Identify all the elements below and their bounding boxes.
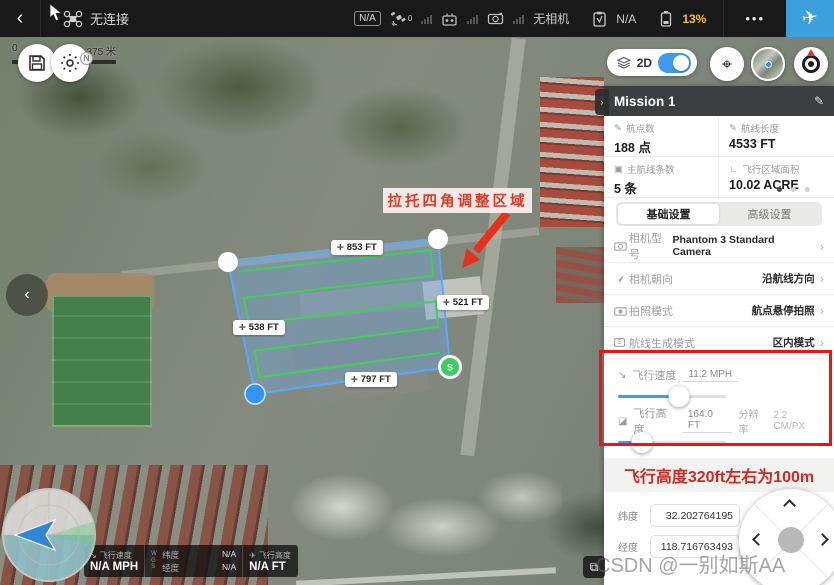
telemetry-alt-label: 飞行高度 — [259, 550, 291, 561]
stat-label: 航线长度 — [741, 121, 779, 135]
setting-row-camera-model[interactable]: 相机型号 Phantom 3 Standard Camera › — [604, 230, 834, 263]
stat-label: 飞行区域面积 — [742, 162, 799, 176]
satellite-status: 0 — [390, 11, 412, 26]
locate-icon: ⌖ — [722, 54, 732, 75]
move-icon: ✛ — [351, 375, 358, 384]
annotation-callout: 拉托四角调整区域 — [383, 188, 532, 213]
topbar-right-cluster: N/A 0 — [354, 0, 834, 37]
clipboard-icon — [592, 11, 607, 27]
tab-advanced-settings[interactable]: 高级设置 — [719, 204, 820, 224]
mission-stats: ✎ 航点数 188 点 ✎ 航线长度 4533 FT ▣ 主航线条数 5 条 ∟… — [604, 116, 834, 198]
route-mode-icon: S — [614, 338, 629, 347]
square-icon: ▣ — [614, 164, 623, 175]
move-icon: ✛ — [239, 323, 246, 332]
wgs-label: WGS — [151, 551, 158, 572]
map-mode-label: 2D — [637, 56, 652, 70]
setting-value: 航点悬停拍照 — [752, 303, 815, 318]
chevron-right-icon: › — [820, 335, 824, 350]
more-menu-button[interactable]: ••• — [733, 11, 777, 26]
setting-value: Phantom 3 Standard Camera — [672, 234, 814, 258]
stat-value: 4533 FT — [729, 137, 834, 151]
divider — [40, 0, 41, 37]
aircraft-status: 无连接 — [63, 9, 129, 28]
nudge-dpad[interactable] — [739, 489, 834, 585]
stat-main-lines: ▣ 主航线条数 5 条 — [604, 157, 719, 198]
edge-distance-label[interactable]: ✛ 538 FT — [233, 320, 285, 335]
signal-bars-icon — [467, 14, 478, 24]
start-marker-label: S — [447, 363, 453, 373]
latitude-label: 纬度 — [618, 508, 642, 523]
mission-title: Mission 1 — [614, 94, 676, 109]
telemetry-alt-value: N/A FT — [249, 561, 291, 573]
stat-label: 航点数 — [626, 121, 655, 135]
corner-handle-bottom-left[interactable] — [245, 384, 265, 404]
altitude-slider-thumb[interactable] — [632, 432, 653, 453]
gear-icon — [60, 53, 80, 73]
setting-label: 相机朝向 — [629, 271, 673, 287]
back-button[interactable]: ‹ — [0, 0, 40, 37]
ruler-icon: ∟ — [729, 164, 738, 175]
telemetry-lat-label: 纬度 — [162, 549, 179, 561]
chevron-left-icon: ‹ — [24, 286, 29, 304]
stat-label: 主航线条数 — [627, 162, 675, 176]
app-screen: 0 375 米 S ✛ 853 FT ✛ 521 FT ✛ 538 FT — [0, 0, 834, 585]
stat-value: 188 点 — [614, 137, 718, 156]
resolution-value: 2.2 CM/PX — [773, 410, 820, 432]
setting-value: 区内模式 — [773, 335, 815, 350]
camera-icon — [614, 241, 629, 251]
setting-row-route-mode[interactable]: S 航线生成模式 区内模式 › — [604, 327, 834, 359]
chevron-right-icon: › — [820, 303, 824, 318]
chevron-right-icon: › — [820, 271, 824, 286]
annotation-arrow — [462, 213, 507, 268]
edge-distance-label[interactable]: ✛ 853 FT — [331, 240, 383, 255]
north-indicator: N — [80, 52, 93, 65]
airplane-icon: ✈ — [800, 6, 820, 31]
camera-status-text: 无相机 — [533, 10, 569, 27]
tab-basic-settings[interactable]: 基础设置 — [618, 204, 719, 224]
stat-waypoints: ✎ 航点数 188 点 — [604, 116, 719, 157]
telemetry-lng-value: N/A — [222, 562, 236, 574]
satellite-count: 0 — [408, 14, 412, 23]
compass-reset-icon — [802, 55, 820, 73]
speed-value[interactable]: 11.2 MPH — [682, 369, 738, 382]
setting-label: 相机型号 — [629, 230, 673, 262]
compass-reset-button[interactable] — [794, 47, 828, 81]
pen-icon: ✎ — [614, 123, 622, 134]
mission-header: Mission 1 ✎ — [604, 86, 834, 116]
locate-button[interactable]: ⌖ — [710, 47, 744, 81]
edge-distance-text: 797 FT — [361, 374, 391, 385]
altitude-annotation-note: 飞行高度320ft左右为100m — [604, 458, 834, 492]
camera-icon — [487, 12, 504, 25]
speed-slider-thumb[interactable] — [668, 386, 689, 407]
telemetry-bar: ↘ 飞行速度 N/A MPH WGS 纬度 N/A 经度 N/A ✈ 飞行高度 — [84, 545, 298, 577]
speed-label: 飞行速度 — [632, 367, 676, 383]
chevron-right-icon: › — [601, 97, 604, 107]
stats-page-dots[interactable] — [777, 187, 810, 192]
telemetry-gps: WGS 纬度 N/A 经度 N/A — [144, 545, 242, 577]
remote-controller-status — [441, 12, 458, 26]
minimap-position-dot — [765, 61, 772, 68]
telemetry-lat-value: N/A — [222, 549, 236, 561]
flight-record-value: N/A — [616, 12, 636, 26]
settings-tabs: 基础设置 高级设置 — [604, 198, 834, 230]
flight-sliders-section: ↘ 飞行速度 11.2 MPH ◪ 飞行高度 164.0 FT 分辨率 2.2 … — [604, 359, 834, 458]
camera-signal — [487, 12, 504, 25]
satellite-icon — [390, 11, 407, 26]
longitude-label: 经度 — [618, 539, 642, 554]
battery-percentage: 13% — [682, 12, 706, 26]
layers-icon — [617, 56, 631, 69]
back-chevron-icon: ‹ — [17, 7, 24, 30]
altitude-plane-icon: ✈ — [249, 551, 256, 560]
speed-slider[interactable] — [618, 384, 820, 410]
speed-icon: ↘ — [618, 370, 626, 381]
setting-label: 拍照模式 — [629, 303, 673, 319]
longitude-field[interactable]: 118.716763493 — [650, 535, 740, 558]
signal-bars-icon — [513, 14, 524, 24]
setting-row-camera-heading[interactable]: 相机朝向 沿航线方向 › — [604, 263, 834, 295]
telemetry-lng-label: 经度 — [162, 562, 179, 574]
remote-controller-icon — [441, 12, 458, 26]
mode-badge: N/A — [354, 11, 381, 26]
altitude-icon: ◪ — [618, 416, 627, 427]
dpad-center-button[interactable] — [778, 527, 804, 553]
edge-distance-label[interactable]: ✛ 521 FT — [437, 295, 489, 310]
minimap-button[interactable] — [751, 47, 785, 81]
stat-value: 5 条 — [614, 178, 718, 197]
corner-handle-top-right[interactable] — [428, 229, 448, 249]
setting-value: 沿航线方向 — [762, 271, 815, 286]
flight-record-status — [592, 11, 607, 27]
setting-row-photo-mode[interactable]: 拍照模式 航点悬停拍照 › — [604, 295, 834, 327]
telemetry-speed-value: N/A MPH — [90, 561, 138, 573]
latitude-field[interactable]: 32.202764195 — [650, 504, 740, 527]
edge-distance-label[interactable]: ✛ 797 FT — [345, 372, 397, 387]
edge-distance-text: 538 FT — [249, 322, 279, 333]
route-start-marker[interactable]: S — [438, 355, 462, 379]
panel-collapse-handle[interactable]: › — [595, 89, 609, 115]
edit-mission-button[interactable]: ✎ — [814, 94, 824, 108]
corner-handle-top-left[interactable] — [218, 252, 238, 272]
map-mode-toggle[interactable] — [658, 53, 691, 73]
collapse-left-button[interactable]: ‹ — [6, 274, 48, 316]
setting-label: 航线生成模式 — [629, 335, 695, 351]
edge-distance-text: 853 FT — [347, 242, 377, 253]
stacked-layers-icon: ⧉ — [590, 560, 599, 575]
takeoff-button[interactable]: ✈ — [786, 0, 834, 37]
top-status-bar: ‹ 无连接 N/A — [0, 0, 834, 37]
flight-area-polygon[interactable] — [228, 239, 450, 394]
telemetry-speed-label: 飞行速度 — [100, 550, 132, 561]
save-icon — [28, 54, 46, 72]
battery-status — [659, 10, 673, 27]
move-icon: ✛ — [443, 298, 450, 307]
altitude-slider[interactable] — [618, 430, 820, 456]
telemetry-altitude: ✈ 飞行高度 N/A FT — [242, 545, 297, 577]
attitude-compass — [1, 487, 97, 583]
move-icon: ✛ — [337, 243, 344, 252]
map-mode-pill: 2D — [607, 49, 697, 76]
scale-start: 0 — [12, 43, 18, 58]
connection-status-text: 无连接 — [90, 9, 129, 28]
photo-mode-icon — [614, 306, 629, 316]
stat-route-length: ✎ 航线长度 4533 FT — [719, 116, 834, 157]
map-layers-button[interactable]: ⧉ — [583, 556, 605, 578]
heading-icon — [614, 274, 629, 284]
divider — [723, 0, 724, 37]
drone-icon — [63, 10, 83, 28]
edge-distance-text: 521 FT — [453, 297, 483, 308]
signal-bars-icon — [421, 14, 432, 24]
pen-icon: ✎ — [729, 123, 737, 134]
chevron-right-icon: › — [820, 239, 824, 254]
battery-icon — [659, 10, 673, 27]
